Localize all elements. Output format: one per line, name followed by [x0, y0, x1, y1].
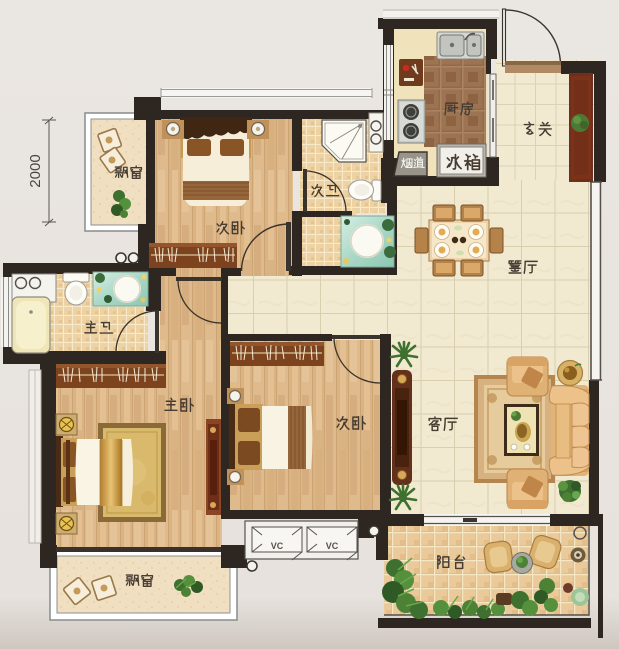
- svg-text:VC: VC: [326, 541, 339, 551]
- svg-text:VC: VC: [271, 541, 284, 551]
- svg-text:2000: 2000: [27, 154, 44, 187]
